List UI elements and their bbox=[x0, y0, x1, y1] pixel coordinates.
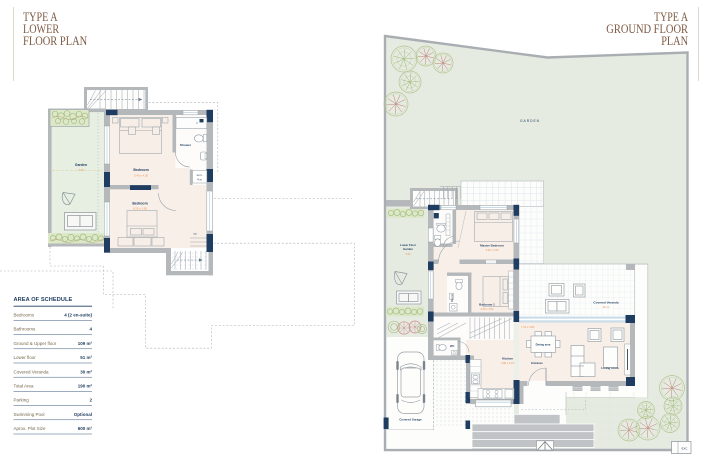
svg-text:4.20 x 3.50: 4.20 x 3.50 bbox=[133, 207, 148, 211]
svg-text:4 m: 4 m bbox=[197, 178, 202, 182]
svg-text:Parking: Parking bbox=[14, 398, 30, 403]
svg-text:GARDEN: GARDEN bbox=[520, 119, 540, 123]
svg-text:Bathrooms: Bathrooms bbox=[14, 327, 37, 332]
svg-text:Aprox. Plot Size: Aprox. Plot Size bbox=[14, 426, 47, 431]
svg-text:109 m²: 109 m² bbox=[78, 341, 93, 346]
svg-text:Kitchen: Kitchen bbox=[502, 357, 513, 361]
svg-text:Covered Veranda: Covered Veranda bbox=[593, 301, 619, 305]
svg-text:30 m²: 30 m² bbox=[603, 305, 610, 309]
svg-text:4 (2 en-suite): 4 (2 en-suite) bbox=[64, 313, 92, 318]
svg-text:2: 2 bbox=[89, 398, 92, 403]
svg-text:Entrance: Entrance bbox=[531, 361, 543, 365]
svg-text:Optional: Optional bbox=[74, 412, 92, 417]
svg-text:3.40 x 4.20: 3.40 x 4.20 bbox=[134, 174, 149, 178]
svg-text:Bedroom 1: Bedroom 1 bbox=[479, 303, 495, 307]
svg-text:3.45 x 3.80: 3.45 x 3.80 bbox=[481, 307, 494, 311]
svg-text:Ground & Upper floor: Ground & Upper floor bbox=[14, 341, 57, 346]
svg-text:3.05 x 4.90: 3.05 x 4.90 bbox=[486, 248, 499, 252]
svg-text:AREA OF SCHEDULE: AREA OF SCHEDULE bbox=[14, 297, 73, 303]
svg-text:w.m.: w.m. bbox=[197, 173, 203, 177]
svg-text:Shower: Shower bbox=[180, 143, 192, 147]
svg-text:Bedrooms: Bedrooms bbox=[14, 313, 35, 318]
svg-text:7.15 x 4.80: 7.15 x 4.80 bbox=[521, 325, 535, 329]
svg-text:Swimming Pool: Swimming Pool bbox=[14, 412, 45, 417]
svg-text:Garden: Garden bbox=[75, 163, 87, 167]
svg-text:Bedroom: Bedroom bbox=[132, 202, 147, 206]
svg-text:PLAN: PLAN bbox=[661, 34, 688, 48]
svg-text:Covered Garage: Covered Garage bbox=[399, 418, 422, 422]
svg-text:51 m²: 51 m² bbox=[80, 355, 92, 360]
svg-text:WC: WC bbox=[450, 344, 454, 348]
svg-text:3.80 x 4.15: 3.80 x 4.15 bbox=[501, 361, 514, 365]
svg-text:4: 4 bbox=[89, 327, 92, 332]
svg-text:190 m²: 190 m² bbox=[78, 384, 93, 389]
svg-text:3.50: 3.50 bbox=[406, 253, 411, 256]
svg-text:30 m²: 30 m² bbox=[80, 369, 92, 374]
svg-text:Bedroom: Bedroom bbox=[133, 168, 148, 172]
svg-text:up: up bbox=[194, 233, 197, 236]
svg-text:Garden: Garden bbox=[403, 247, 413, 251]
svg-text:Total Area: Total Area bbox=[14, 384, 35, 389]
svg-text:Master Bedroom: Master Bedroom bbox=[480, 244, 504, 248]
svg-text:Lower floor: Lower floor bbox=[14, 355, 37, 360]
svg-text:600 m²: 600 m² bbox=[78, 426, 93, 431]
svg-text:Covered Veranda: Covered Veranda bbox=[14, 369, 50, 374]
svg-text:Living room: Living room bbox=[601, 366, 618, 370]
svg-text:Dining area: Dining area bbox=[536, 343, 551, 347]
svg-text:Shower: Shower bbox=[451, 294, 454, 303]
svg-text:EXC: EXC bbox=[682, 447, 688, 451]
svg-text:FLOOR PLAN: FLOOR PLAN bbox=[23, 34, 88, 48]
